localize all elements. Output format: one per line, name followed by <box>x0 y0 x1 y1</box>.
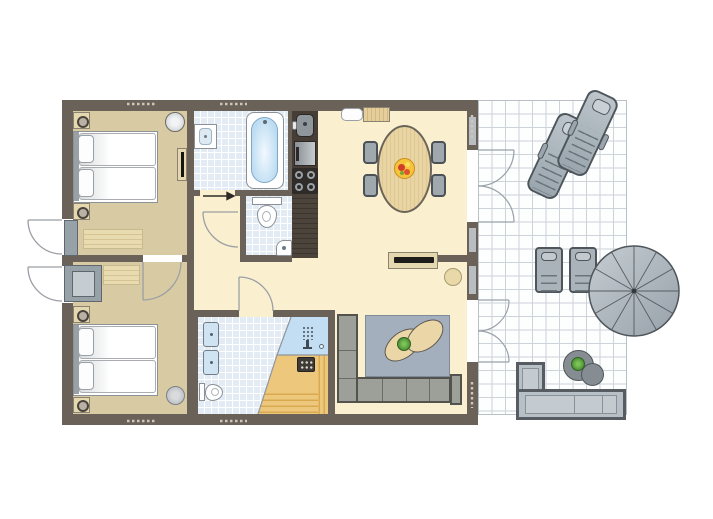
burner <box>307 183 315 191</box>
kitchen-block <box>292 111 318 258</box>
bedroom2-nightstand-top <box>73 306 90 323</box>
wc-corner-basin <box>276 240 292 256</box>
bedroom2-rug <box>103 265 140 285</box>
bath2-basin2-drain <box>210 361 213 364</box>
bedroom2-pillow-1 <box>78 328 94 356</box>
bedroom1-tv-panel <box>177 148 187 181</box>
door-exterior-1 <box>28 220 62 254</box>
bedroom1-entry-mat <box>64 220 78 256</box>
bedroom1-bed <box>73 131 158 203</box>
wall-wc-bottom <box>240 255 292 262</box>
sauna-plank-slats <box>315 355 328 414</box>
bath2-basin1-drain <box>210 333 213 336</box>
wall-bath2-right <box>328 310 335 414</box>
bedroom2-wardrobe <box>64 265 102 302</box>
bedroom2-stool <box>166 386 185 405</box>
dining-chair-2 <box>363 174 378 197</box>
burner <box>295 183 303 191</box>
bedroom1-pillow-2 <box>78 169 94 197</box>
bathtub-faucet <box>261 115 269 119</box>
sofa-seat-bottom <box>356 377 451 403</box>
wall-bath1-south-l <box>187 190 200 196</box>
floorplan-canvas <box>0 0 713 519</box>
wall-stub-living <box>435 255 467 262</box>
bathtub-basin <box>251 117 278 183</box>
shower-head-icon <box>300 326 316 352</box>
window-right-2 <box>469 228 476 252</box>
doormat-wood <box>363 107 390 122</box>
living-pouf <box>444 268 462 286</box>
kitchen-stove <box>292 168 318 194</box>
wall-mid-1 <box>62 255 143 262</box>
kitchen-faucet <box>292 121 297 130</box>
bathtub-drain <box>263 120 267 124</box>
bath2-basin-1 <box>203 322 219 347</box>
bedroom2-wardrobe-inner <box>72 271 95 297</box>
wall-bath2-top-r <box>273 310 335 317</box>
fridge-handle <box>296 147 299 161</box>
window-right-3 <box>469 266 476 294</box>
wall-bath2-top-l <box>190 310 239 317</box>
bath2-basin-2 <box>203 350 219 375</box>
wc-toilet-inner <box>262 211 271 222</box>
bedroom1-nightstand-top <box>73 112 90 129</box>
wall-wc-left <box>240 196 246 256</box>
wall-mid-2 <box>182 255 194 262</box>
wall-bedroom1-hall <box>187 111 194 262</box>
kitchen-fridge <box>294 141 316 166</box>
terrace-plant <box>571 357 585 371</box>
bath1-washbasin <box>194 124 217 149</box>
fruit-bowl <box>394 158 415 179</box>
dining-chair-3 <box>431 141 446 164</box>
burner <box>295 171 303 179</box>
outdoor-sofa-seat <box>516 389 626 420</box>
bedroom2-pillow-2 <box>78 362 94 390</box>
dining-chair-1 <box>363 141 378 164</box>
window-right-1 <box>469 117 476 145</box>
bedroom1-mirror <box>165 112 185 132</box>
kitchen-counter <box>292 194 318 258</box>
wall-bath2-left <box>190 310 198 414</box>
sauna-bench-slats <box>258 389 318 414</box>
wall-top <box>62 100 478 111</box>
wall-bench <box>341 108 363 121</box>
wall-right-c <box>467 362 478 425</box>
bedroom2-nightstand-bottom <box>73 397 90 413</box>
wall-bottom <box>62 414 478 425</box>
kitchen-sink-drain <box>303 122 307 126</box>
bedroom1-rug <box>83 229 143 249</box>
shower-knob <box>319 344 324 349</box>
bedroom2-bed <box>73 324 158 396</box>
bath1-basin-drain <box>204 135 207 138</box>
bathtub <box>246 112 284 189</box>
door-exterior-2 <box>28 267 62 301</box>
sofa-back-left <box>337 314 358 403</box>
living-plant <box>397 337 411 351</box>
tv-screen <box>394 257 434 263</box>
sofa-armrest-right <box>450 374 462 405</box>
wc-toilet-tank <box>252 197 282 205</box>
sauna-heater <box>297 357 315 372</box>
bath2-toilet-inner <box>211 388 219 396</box>
tv-sideboard <box>388 252 438 269</box>
wall-left-upper <box>62 100 73 219</box>
wall-left-lower <box>62 303 73 425</box>
wc-basin-drain <box>282 246 286 250</box>
dining-chair-4 <box>431 174 446 197</box>
terrace-chair-2 <box>569 247 597 293</box>
terrace-chair-1 <box>535 247 563 293</box>
burner <box>307 171 315 179</box>
bedroom1-nightstand-bottom <box>73 203 90 220</box>
bedroom1-pillow-1 <box>78 135 94 163</box>
